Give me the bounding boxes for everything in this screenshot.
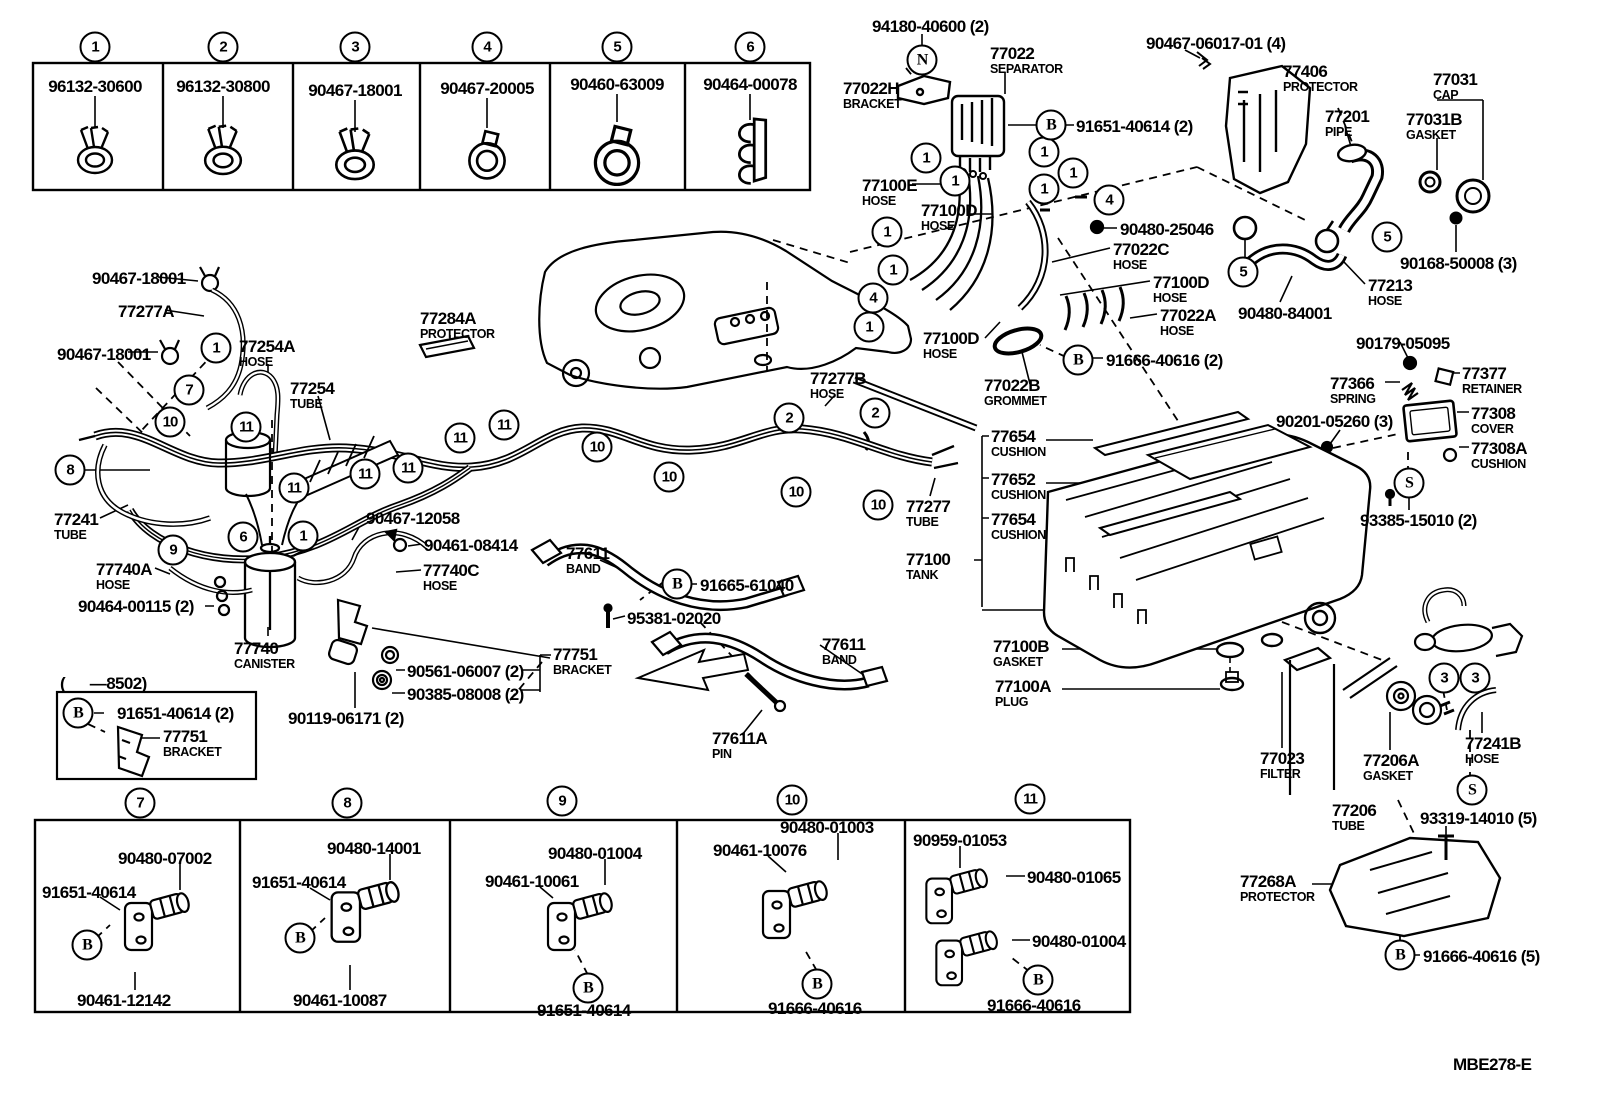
- callout-1: 1: [80, 32, 111, 63]
- callout-B: B: [1036, 110, 1067, 141]
- callout-B: B: [662, 569, 693, 600]
- callout-6: 6: [228, 522, 259, 553]
- callout-5: 5: [1228, 257, 1259, 288]
- callout-10: 10: [863, 490, 894, 521]
- callout-S: S: [1394, 468, 1425, 499]
- callout-11: 11: [279, 473, 310, 504]
- callout-B: B: [285, 923, 316, 954]
- callout-B: B: [1023, 965, 1054, 996]
- callout-3: 3: [1460, 663, 1491, 694]
- callout-4: 4: [472, 32, 503, 63]
- callout-1: 1: [1058, 158, 1089, 189]
- callout-10: 10: [654, 462, 685, 493]
- callout-B: B: [802, 969, 833, 1000]
- callout-9: 9: [158, 535, 189, 566]
- callout-1: 1: [911, 143, 942, 174]
- callout-4: 4: [858, 283, 889, 314]
- callout-10: 10: [582, 432, 613, 463]
- callout-B: B: [1385, 940, 1416, 971]
- callout-2: 2: [208, 32, 239, 63]
- callout-5: 5: [602, 32, 633, 63]
- callout-1: 1: [201, 333, 232, 364]
- callout-1: 1: [854, 312, 885, 343]
- callout-8: 8: [55, 455, 86, 486]
- callout-S: S: [1457, 775, 1488, 806]
- callout-B: B: [63, 698, 94, 729]
- callout-B: B: [1063, 345, 1094, 376]
- callout-4: 4: [1094, 185, 1125, 216]
- callouts-layer: 1234567891011111114114155171011811961111…: [0, 0, 1600, 1098]
- callout-N: N: [907, 45, 938, 76]
- callout-9: 9: [547, 786, 578, 817]
- callout-B: B: [72, 930, 103, 961]
- callout-10: 10: [777, 785, 808, 816]
- callout-11: 11: [445, 423, 476, 454]
- parts-diagram-sheet: 96132-3060096132-3080090467-1800190467-2…: [0, 0, 1600, 1098]
- callout-1: 1: [1029, 137, 1060, 168]
- callout-1: 1: [1029, 174, 1060, 205]
- callout-1: 1: [878, 255, 909, 286]
- callout-3: 3: [340, 32, 371, 63]
- callout-6: 6: [735, 32, 766, 63]
- callout-B: B: [573, 973, 604, 1004]
- callout-8: 8: [332, 788, 363, 819]
- callout-11: 11: [393, 453, 424, 484]
- callout-3: 3: [1429, 663, 1460, 694]
- callout-1: 1: [940, 166, 971, 197]
- callout-11: 11: [350, 459, 381, 490]
- callout-10: 10: [155, 407, 186, 438]
- callout-11: 11: [231, 412, 262, 443]
- callout-2: 2: [774, 403, 805, 434]
- callout-1: 1: [872, 217, 903, 248]
- callout-5: 5: [1372, 222, 1403, 253]
- callout-1: 1: [288, 521, 319, 552]
- callout-11: 11: [1015, 784, 1046, 815]
- callout-7: 7: [174, 375, 205, 406]
- callout-11: 11: [489, 410, 520, 441]
- callout-2: 2: [860, 398, 891, 429]
- callout-7: 7: [125, 788, 156, 819]
- callout-10: 10: [781, 477, 812, 508]
